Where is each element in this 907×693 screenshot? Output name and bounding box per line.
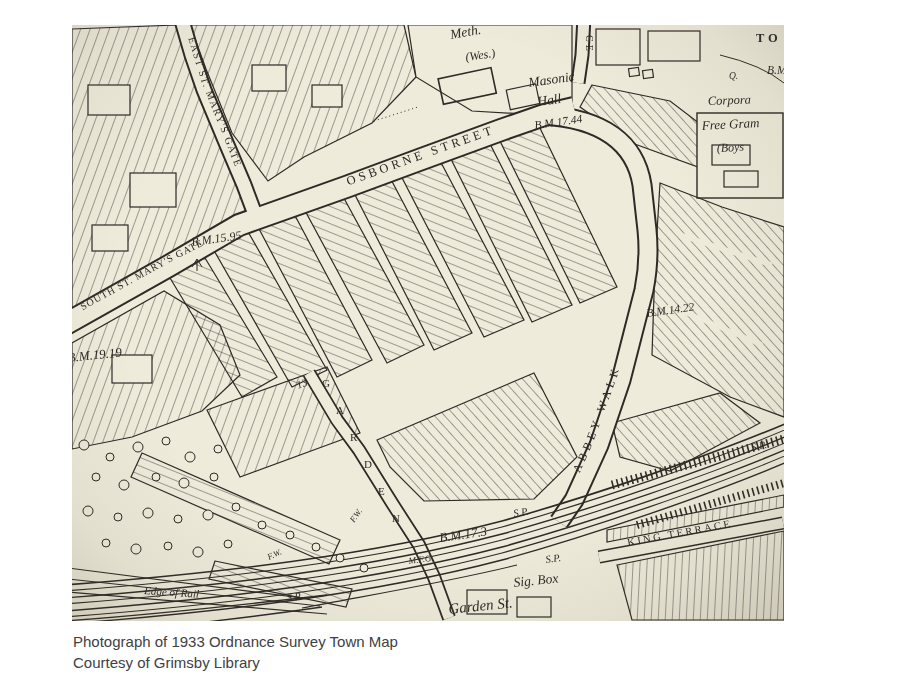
label-boys: (Boys: [716, 140, 744, 155]
label-to-fragment: TO: [756, 31, 782, 45]
photo-caption: Photograph of 1933 Ordnance Survey Town …: [73, 631, 633, 673]
label-corporation: Corpora: [708, 93, 752, 108]
label-bm-fragment: B.M: [767, 64, 784, 76]
street-label-ce: CE: [584, 35, 595, 54]
label-sp-3: S.P.: [286, 590, 303, 603]
label-free-grammar: Free Gram: [700, 115, 759, 133]
map-photo: Meth. (Wes.) Masonic Hall B.M.17.44 CE T…: [72, 25, 784, 621]
label-sp-2: S.P.: [545, 552, 562, 565]
label-q: Q.: [729, 71, 738, 81]
map-art: Meth. (Wes.) Masonic Hall B.M.17.44 CE T…: [72, 25, 784, 621]
map-svg: Meth. (Wes.) Masonic Hall B.M.17.44 CE T…: [72, 25, 784, 621]
caption-line1: Photograph of 1933 Ordnance Survey Town …: [73, 631, 633, 652]
caption-line2: Courtesy of Grimsby Library: [73, 652, 633, 673]
page: { "page": { "background": "#ffffff" }, "…: [0, 0, 907, 693]
